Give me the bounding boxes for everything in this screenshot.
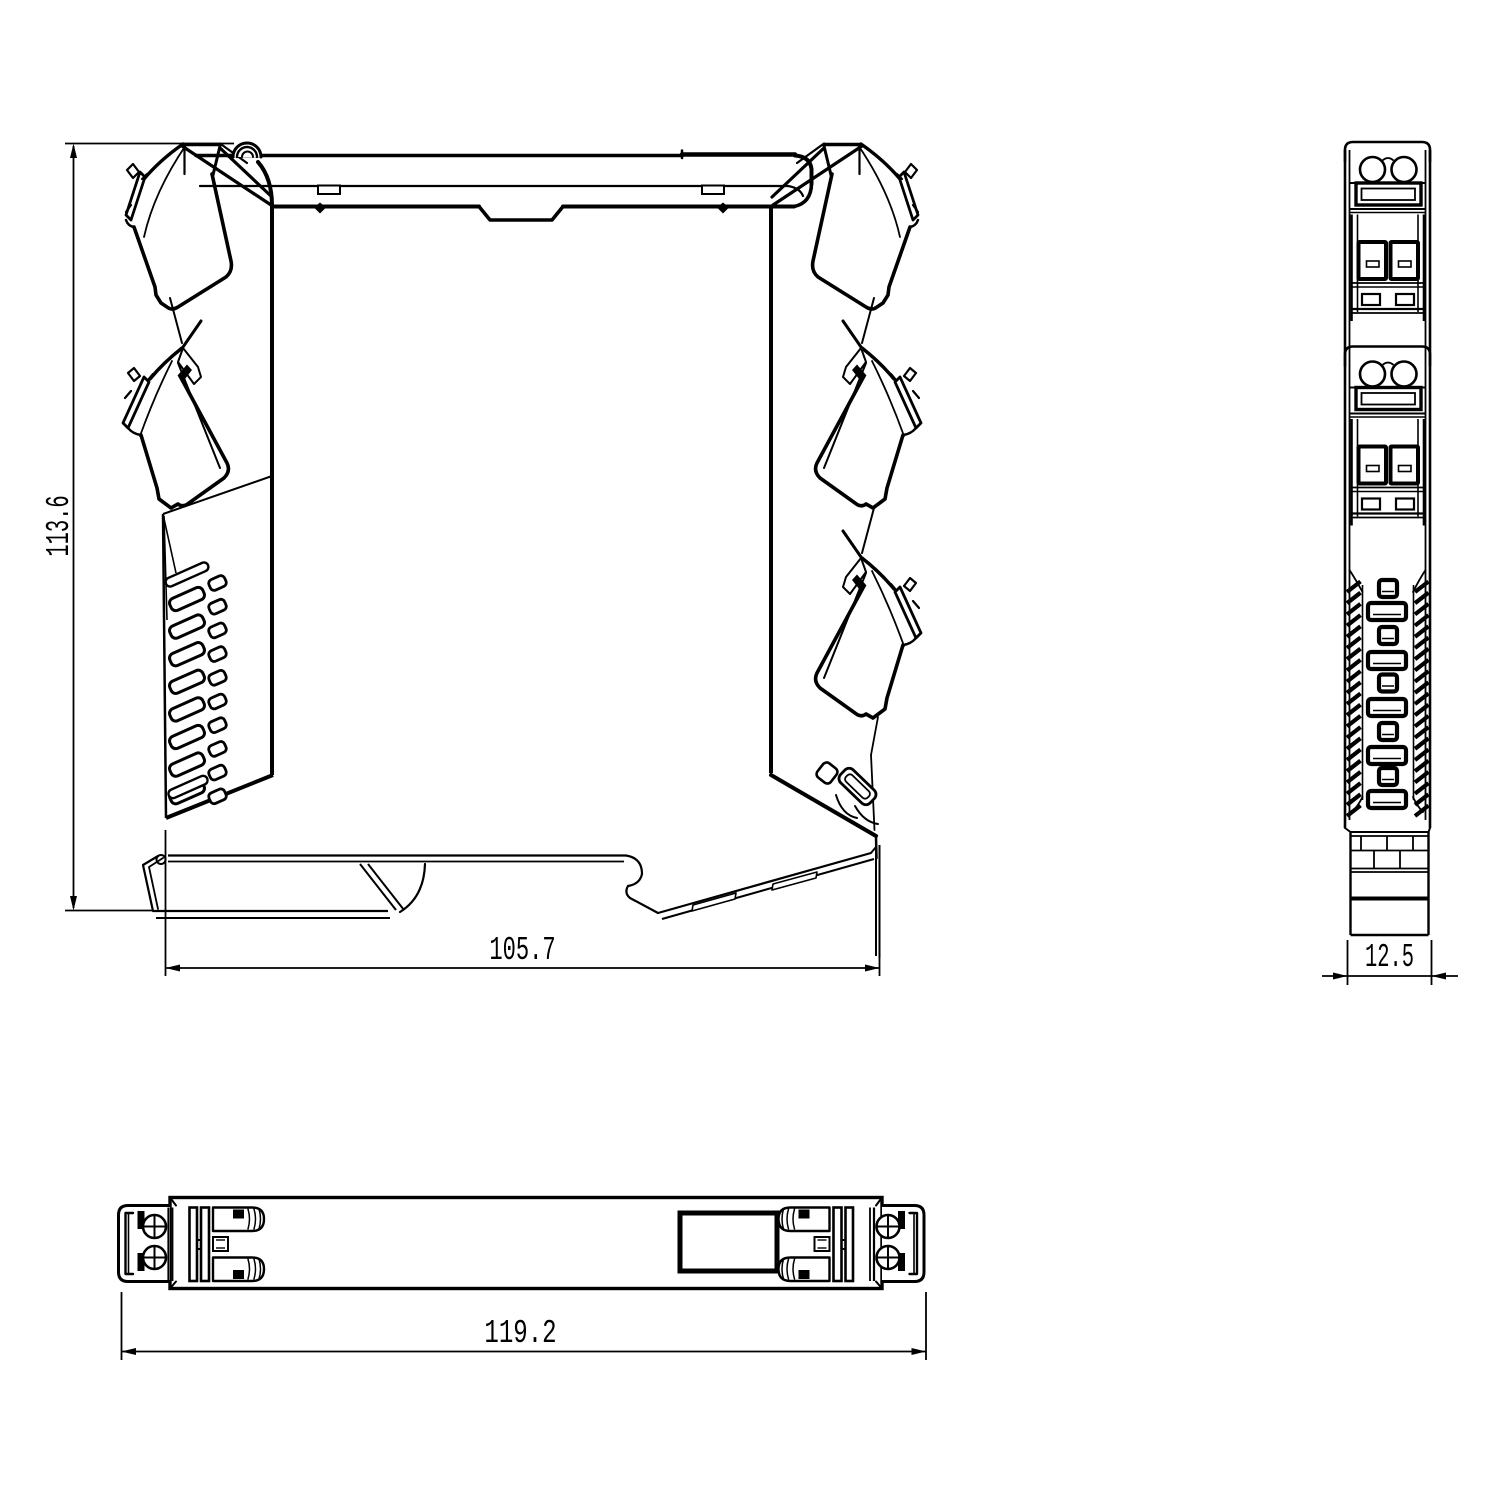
svg-text:12.5: 12.5 <box>1365 940 1414 977</box>
svg-text:113.6: 113.6 <box>42 495 79 556</box>
svg-text:105.7: 105.7 <box>489 933 555 969</box>
svg-text:119.2: 119.2 <box>484 1315 556 1353</box>
